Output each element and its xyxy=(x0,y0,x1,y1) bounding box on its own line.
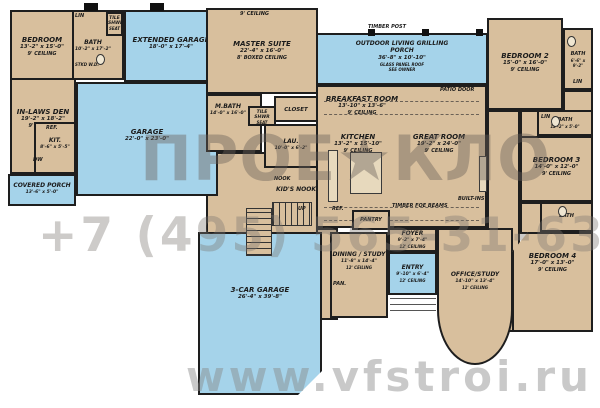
room-master-suite: MASTER SUITE 22'-4" x 16'-0" 8' BOXED CE… xyxy=(206,8,318,94)
room-name: COVERED PORCH xyxy=(10,183,74,190)
room-name: LAU. xyxy=(266,139,316,146)
room-ceiling: 9' CEILING xyxy=(489,67,561,73)
chimney-nub xyxy=(84,3,98,11)
staircase-lower-run xyxy=(246,208,272,256)
room-three-car-garage: 3-CAR GARAGE 26'-4" x 39'-8" xyxy=(198,232,322,395)
room-dims: 18'-0" x 17'-4" xyxy=(126,44,216,51)
room-dims: 9'-10" x 6'-4" xyxy=(390,272,435,278)
room-ceiling: 12' CEILING xyxy=(332,265,386,270)
toilet-icon xyxy=(567,36,576,47)
room-tile-shower-2: TILE SHWR SEAT xyxy=(248,106,276,126)
room-dims: 36'-8" x 10'-10" xyxy=(348,55,456,62)
room-name: PANTRY xyxy=(354,218,388,224)
room-ceiling: 9' CEILING xyxy=(399,148,479,154)
room-garage: GARAGE 22'-0" x 23'-0" xyxy=(76,82,218,196)
room-dims: 10'-2" x 17'-2" xyxy=(74,47,112,53)
room-ceiling: 9' CEILING xyxy=(514,267,591,273)
room-covered-porch: COVERED PORCH 13'-6" x 5'-0" xyxy=(8,174,76,206)
toilet-icon xyxy=(558,206,567,217)
room-dims: 9'-2" x 7'-4" xyxy=(390,238,435,244)
room-name: GARAGE xyxy=(78,128,216,136)
ceiling-beam xyxy=(324,220,479,221)
room-bedroom-4: BEDROOM 4 17'-0" x 13'-0" 9' CEILING xyxy=(512,232,593,332)
room-dims: 11'-8" x 14'-4" xyxy=(332,259,386,265)
kitchen-counter xyxy=(328,150,338,202)
ceiling-beam xyxy=(324,101,479,102)
room-name: ENTRY xyxy=(390,265,435,272)
room-foyer: FOYER 9'-2" x 7'-4" 12' CEILING xyxy=(388,228,437,252)
room-name: EXTENDED GARAGE xyxy=(126,36,216,44)
room-dims: 6'-6" x 9'-2" xyxy=(565,58,591,68)
room-pantry: PANTRY xyxy=(352,210,390,230)
room-ceiling: 12' CEILING xyxy=(390,278,435,283)
ceiling-beam xyxy=(324,207,479,208)
room-kitchenette: KIT. 8'-6" x 5'-5" xyxy=(34,122,76,174)
room-dims: 19'-2" x 24'-0" xyxy=(399,141,479,148)
room-name: IN-LAWS DEN xyxy=(12,108,74,116)
closet-hall-3 xyxy=(520,202,542,234)
floor-plan: BEDROOM 13'-2" x 15'-0" 9' CEILING BATH … xyxy=(0,0,600,408)
room-name: OFFICE/STUDY xyxy=(439,272,511,279)
room-dims: 22'-0" x 23'-0" xyxy=(78,136,216,143)
room-ceiling: 12' CEILING xyxy=(439,285,511,290)
room-ceiling: 9' CEILING xyxy=(522,171,591,177)
room-dims: 12'-2" x 5'-0" xyxy=(539,124,591,129)
room-name: BEDROOM 2 xyxy=(489,52,561,60)
room-name: BATH xyxy=(565,52,591,58)
room-dims: 17'-0" x 13'-0" xyxy=(514,260,591,267)
room-master-closet: CLOSET xyxy=(274,96,318,122)
room-name: GREAT ROOM xyxy=(399,133,479,141)
room-name: BATH xyxy=(539,118,591,124)
toilet-icon xyxy=(551,116,560,127)
room-name: FOYER xyxy=(390,231,435,238)
entry-step xyxy=(390,298,436,299)
fireplace xyxy=(479,156,487,192)
room-note: GLASS PANEL ROOF xyxy=(348,62,456,67)
kitchen-island xyxy=(350,152,382,194)
room-name: BATH xyxy=(74,40,112,47)
room-dims: 13'-2" x 15'-10" xyxy=(318,141,398,148)
room-name: OUTDOOR LIVING GRILLING PORCH xyxy=(348,41,456,55)
room-ceiling: 12' CEILING xyxy=(390,244,435,249)
room-bedroom: BEDROOM 13'-2" x 15'-0" 9' CEILING xyxy=(10,10,74,80)
room-ceiling: 9' CEILING xyxy=(12,51,72,57)
room-dims: 10'-0" x 6'-2" xyxy=(266,146,316,152)
room-dining-study: DINING / STUDY 11'-8" x 14'-4" 12' CEILI… xyxy=(330,232,388,318)
room-extended-garage: EXTENDED GARAGE 18'-0" x 17'-4" xyxy=(124,10,218,82)
room-entry: ENTRY 9'-10" x 6'-4" 12' CEILING xyxy=(388,252,437,295)
timber-post-icon xyxy=(368,29,375,36)
room-dims: 13'-6" x 5'-0" xyxy=(10,190,74,196)
room-bath-4: BATH xyxy=(540,202,593,232)
room-dims: 14'-0" x 16'-0" xyxy=(208,111,248,117)
room-name: MASTER SUITE xyxy=(208,40,316,48)
toilet-icon xyxy=(96,54,105,65)
room-central-block: BREAKFAST ROOM 13'-10" x 13'-6" 9' CEILI… xyxy=(316,85,487,228)
room-dims: 15'-0" x 16'-0" xyxy=(489,60,561,67)
room-name: KIT. xyxy=(36,138,74,145)
room-name: BEDROOM xyxy=(12,36,72,44)
room-name: CLOSET xyxy=(276,107,316,113)
room-bedroom-2: BEDROOM 2 15'-0" x 16'-0" 9' CEILING xyxy=(487,18,563,110)
room-ceiling: 8' BOXED CEILING xyxy=(208,55,316,61)
room-dims: 8'-6" x 5'-5" xyxy=(36,145,74,151)
room-note-2: SEE OWNER xyxy=(348,67,456,72)
room-laundry: LAU. 10'-0" x 6'-2" xyxy=(264,124,318,168)
room-name: TILE SHWR xyxy=(250,110,274,120)
entry-step xyxy=(390,310,436,311)
room-dims: 26'-4" x 39'-8" xyxy=(200,294,320,301)
entry-step xyxy=(390,304,436,305)
room-name: M.BATH xyxy=(208,104,248,111)
room-name: BEDROOM 4 xyxy=(514,252,591,260)
timber-post-icon xyxy=(422,29,429,36)
room-name: TILE SHWR xyxy=(108,16,121,26)
room-name: BATH xyxy=(542,214,591,220)
ceiling-beam xyxy=(324,114,479,115)
room-name: BEDROOM 3 xyxy=(522,156,591,164)
room-dims: 14'-10" x 13'-4" xyxy=(439,279,511,285)
room-dims: 14'-0" x 12'-0" xyxy=(522,164,591,171)
room-dims: 22'-4" x 16'-0" xyxy=(208,48,316,55)
room-name: KITCHEN xyxy=(318,133,398,141)
room-dims: 13'-10" x 13'-6" xyxy=(318,103,406,110)
room-name: 3-CAR GARAGE xyxy=(200,286,320,294)
room-tile-shower-1: TILE SHWR SEAT xyxy=(106,12,123,36)
room-bedroom-3: BEDROOM 3 14'-0" x 12'-0" 9' CEILING xyxy=(520,136,593,202)
chimney-nub xyxy=(150,3,164,11)
room-dims: 13'-2" x 15'-0" xyxy=(12,44,72,51)
room-name: DINING / STUDY xyxy=(332,252,386,259)
staircase-up xyxy=(272,202,312,226)
room-note: SEAT xyxy=(108,26,121,31)
room-outdoor-living-porch: OUTDOOR LIVING GRILLING PORCH 36'-8" x 1… xyxy=(316,33,488,85)
room-office-study: OFFICE/STUDY 14'-10" x 13'-4" 12' CEILIN… xyxy=(437,228,513,365)
room-bath-3: BATH 12'-2" x 5'-0" xyxy=(537,110,593,136)
timber-post-icon xyxy=(476,29,483,36)
closet-hall-2 xyxy=(563,90,593,112)
